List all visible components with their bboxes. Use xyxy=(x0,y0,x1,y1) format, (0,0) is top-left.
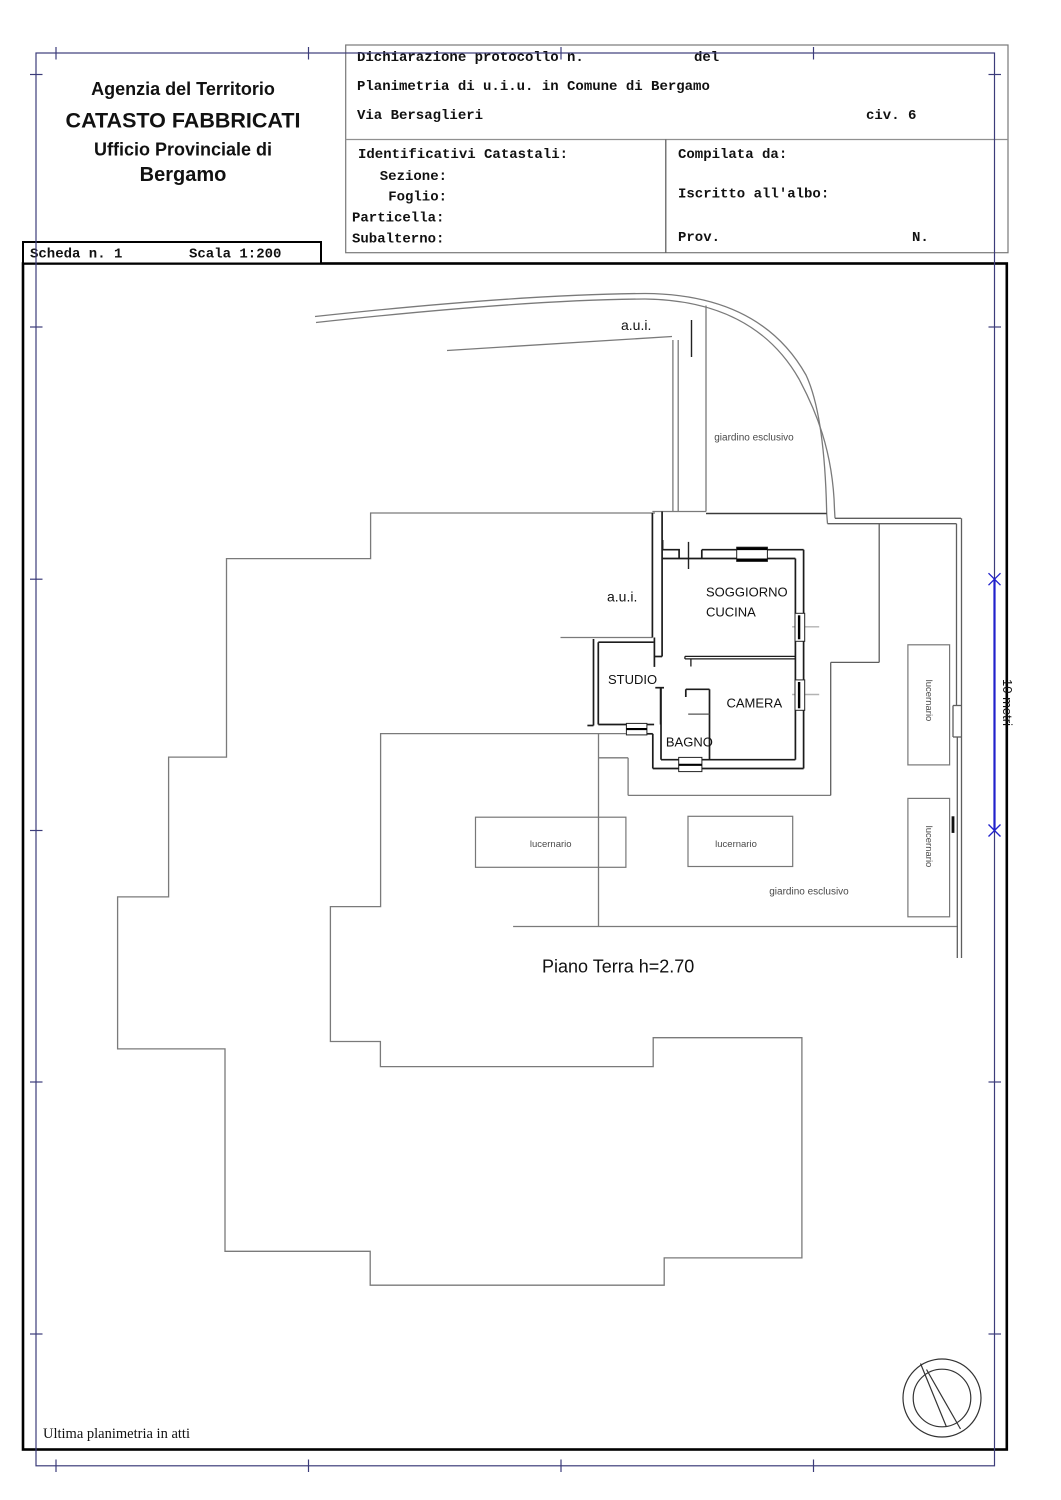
svg-text:Planimetria di u.i.u. in Comun: Planimetria di u.i.u. in Comune di Berga… xyxy=(357,79,710,95)
svg-text:Via Bersaglieri: Via Bersaglieri xyxy=(357,108,483,124)
svg-text:giardino esclusivo: giardino esclusivo xyxy=(769,887,849,898)
svg-text:lucernario: lucernario xyxy=(530,839,572,850)
svg-text:Foglio:: Foglio: xyxy=(388,190,447,206)
svg-text:Iscritto all'albo:: Iscritto all'albo: xyxy=(678,187,829,203)
svg-text:CAMERA: CAMERA xyxy=(727,696,783,711)
svg-text:Piano Terra h=2.70: Piano Terra h=2.70 xyxy=(542,957,694,977)
svg-text:CATASTO FABBRICATI: CATASTO FABBRICATI xyxy=(66,109,301,133)
svg-text:a.u.i.: a.u.i. xyxy=(621,317,651,333)
svg-text:Identificativi Catastali:: Identificativi Catastali: xyxy=(358,147,568,163)
svg-text:Sezione:: Sezione: xyxy=(380,169,447,185)
svg-text:civ. 6: civ. 6 xyxy=(866,108,916,124)
svg-text:Agenzia del Territorio: Agenzia del Territorio xyxy=(91,79,275,99)
svg-text:Bergamo: Bergamo xyxy=(140,164,227,186)
svg-text:Scheda n. 1: Scheda n. 1 xyxy=(30,247,122,263)
svg-text:Subalterno:: Subalterno: xyxy=(352,232,444,248)
svg-text:SOGGIORNO: SOGGIORNO xyxy=(706,585,788,600)
svg-text:lucernario: lucernario xyxy=(715,839,757,850)
svg-text:Particella:: Particella: xyxy=(352,211,444,227)
svg-text:lucernario: lucernario xyxy=(923,680,934,722)
svg-text:lucernario: lucernario xyxy=(923,826,934,868)
svg-text:Ufficio Provinciale di: Ufficio Provinciale di xyxy=(94,140,272,160)
svg-text:N.: N. xyxy=(912,230,929,246)
svg-text:10 metri: 10 metri xyxy=(1000,679,1015,726)
svg-text:giardino esclusivo: giardino esclusivo xyxy=(714,433,794,444)
svg-text:CUCINA: CUCINA xyxy=(706,604,756,619)
svg-text:a.u.i.: a.u.i. xyxy=(607,589,637,605)
svg-text:STUDIO: STUDIO xyxy=(608,672,657,687)
svg-text:Scala 1:200: Scala 1:200 xyxy=(189,247,281,263)
svg-text:BAGNO: BAGNO xyxy=(666,734,713,749)
svg-text:Ultima planimetria in atti: Ultima planimetria in atti xyxy=(43,1426,190,1442)
svg-text:Prov.: Prov. xyxy=(678,230,720,246)
svg-text:Compilata da:: Compilata da: xyxy=(678,147,787,163)
